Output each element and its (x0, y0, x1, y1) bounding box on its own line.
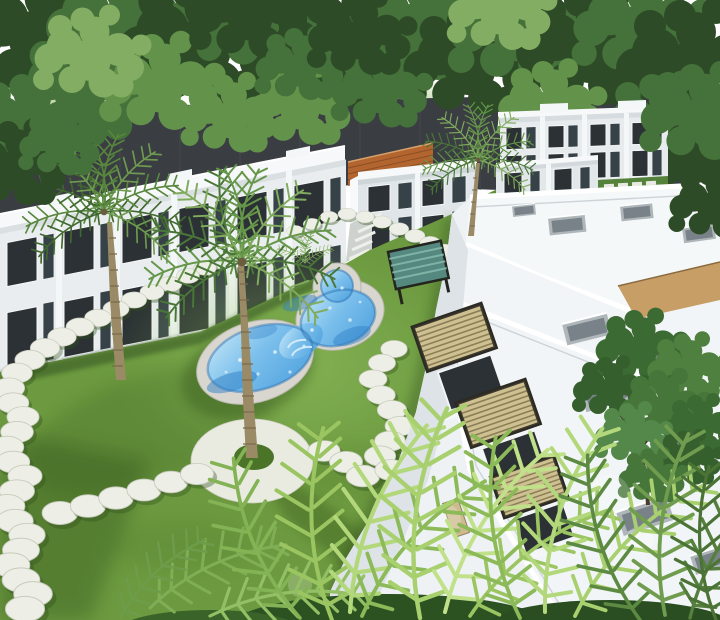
scene-canvas (0, 0, 720, 620)
architectural-rendering: 3D architectural rendering of a white mo… (0, 0, 720, 620)
